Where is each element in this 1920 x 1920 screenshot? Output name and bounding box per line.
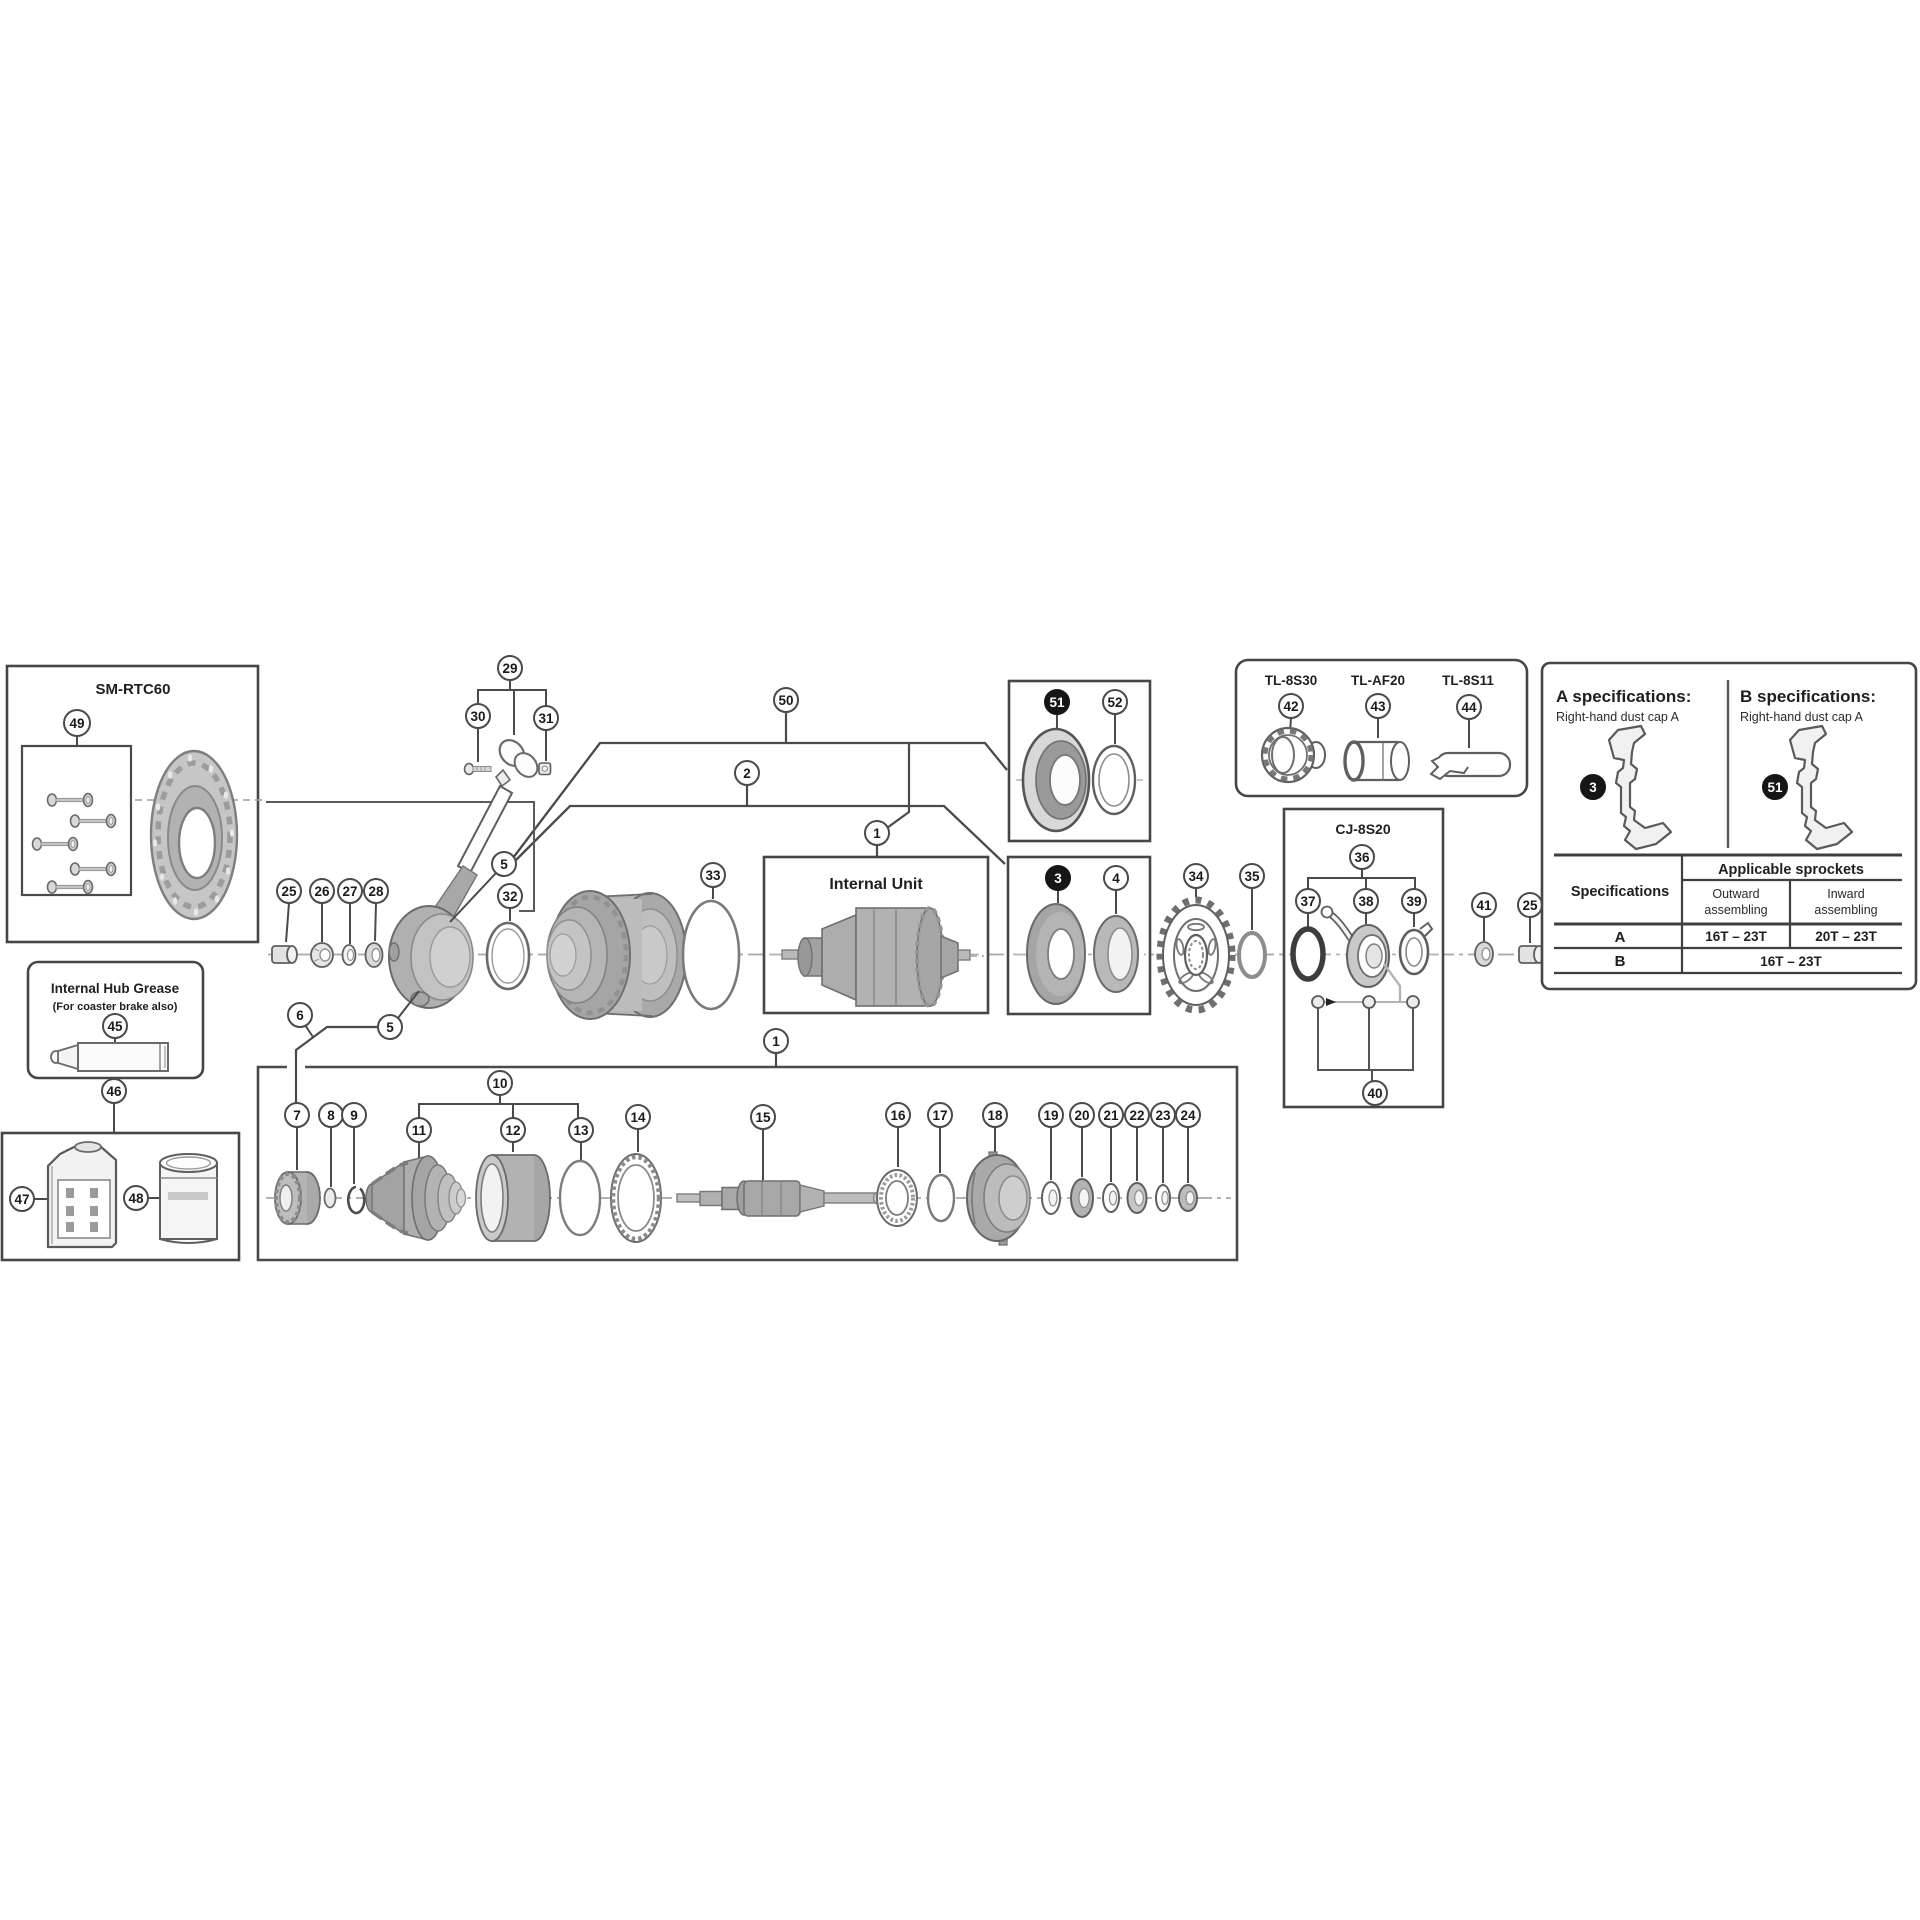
- svg-text:Inward: Inward: [1827, 887, 1865, 901]
- svg-text:20T – 23T: 20T – 23T: [1815, 929, 1877, 944]
- svg-text:33: 33: [705, 868, 721, 883]
- svg-text:22: 22: [1129, 1108, 1144, 1123]
- svg-text:Right-hand dust cap A: Right-hand dust cap A: [1556, 710, 1680, 724]
- svg-text:46: 46: [106, 1084, 122, 1099]
- svg-text:31: 31: [538, 711, 554, 726]
- svg-text:18: 18: [987, 1108, 1003, 1123]
- svg-text:1: 1: [772, 1034, 780, 1049]
- svg-text:TL-8S30: TL-8S30: [1265, 673, 1318, 688]
- svg-text:B specifications:: B specifications:: [1740, 687, 1876, 706]
- svg-text:36: 36: [1354, 850, 1370, 865]
- svg-text:A specifications:: A specifications:: [1556, 687, 1691, 706]
- svg-text:4: 4: [1112, 871, 1120, 886]
- svg-text:43: 43: [1370, 699, 1386, 714]
- svg-text:16: 16: [890, 1108, 906, 1123]
- svg-text:8: 8: [327, 1108, 335, 1123]
- svg-text:12: 12: [505, 1123, 520, 1138]
- svg-text:32: 32: [502, 889, 517, 904]
- svg-text:37: 37: [1300, 894, 1315, 909]
- svg-text:Outward: Outward: [1712, 887, 1759, 901]
- svg-text:39: 39: [1406, 894, 1421, 909]
- svg-text:47: 47: [14, 1192, 29, 1207]
- svg-text:21: 21: [1103, 1108, 1119, 1123]
- svg-text:assembling: assembling: [1814, 903, 1877, 917]
- svg-text:TL-8S11: TL-8S11: [1442, 673, 1494, 688]
- svg-text:20: 20: [1074, 1108, 1089, 1123]
- svg-text:30: 30: [470, 709, 485, 724]
- svg-text:23: 23: [1155, 1108, 1171, 1123]
- svg-text:50: 50: [778, 693, 793, 708]
- svg-text:Applicable sprockets: Applicable sprockets: [1718, 862, 1864, 878]
- svg-text:52: 52: [1107, 695, 1122, 710]
- svg-text:3: 3: [1589, 780, 1597, 795]
- svg-text:A: A: [1615, 929, 1626, 946]
- svg-text:9: 9: [350, 1108, 358, 1123]
- svg-text:assembling: assembling: [1704, 903, 1767, 917]
- svg-text:29: 29: [502, 661, 517, 676]
- svg-text:3: 3: [1054, 871, 1062, 886]
- svg-text:2: 2: [743, 766, 751, 781]
- svg-text:5: 5: [386, 1020, 394, 1035]
- svg-text:48: 48: [128, 1191, 144, 1206]
- svg-text:6: 6: [296, 1008, 304, 1023]
- svg-text:10: 10: [492, 1076, 507, 1091]
- svg-text:19: 19: [1043, 1108, 1058, 1123]
- svg-text:25: 25: [1522, 898, 1538, 913]
- svg-text:49: 49: [69, 716, 84, 731]
- svg-text:16T – 23T: 16T – 23T: [1705, 929, 1767, 944]
- svg-text:B: B: [1615, 953, 1626, 970]
- svg-text:Right-hand dust cap A: Right-hand dust cap A: [1740, 710, 1864, 724]
- svg-text:41: 41: [1476, 898, 1492, 913]
- svg-text:1: 1: [873, 826, 881, 841]
- svg-text:(For coaster brake also): (For coaster brake also): [53, 1001, 178, 1013]
- svg-text:7: 7: [293, 1108, 301, 1123]
- svg-text:26: 26: [314, 884, 330, 899]
- svg-text:CJ-8S20: CJ-8S20: [1335, 821, 1390, 837]
- svg-text:44: 44: [1461, 700, 1477, 715]
- svg-text:51: 51: [1767, 780, 1783, 795]
- svg-text:15: 15: [755, 1110, 771, 1125]
- svg-text:40: 40: [1367, 1086, 1382, 1101]
- svg-text:11: 11: [412, 1123, 427, 1138]
- svg-text:14: 14: [630, 1110, 646, 1125]
- svg-text:SM-RTC60: SM-RTC60: [95, 681, 170, 698]
- svg-text:27: 27: [342, 884, 357, 899]
- svg-text:13: 13: [573, 1123, 589, 1138]
- svg-text:24: 24: [1180, 1108, 1196, 1123]
- svg-text:38: 38: [1358, 894, 1374, 909]
- svg-text:42: 42: [1283, 699, 1298, 714]
- svg-text:Internal Unit: Internal Unit: [829, 876, 923, 893]
- svg-text:TL-AF20: TL-AF20: [1351, 673, 1405, 688]
- svg-text:35: 35: [1244, 869, 1260, 884]
- svg-text:25: 25: [281, 884, 297, 899]
- svg-text:17: 17: [932, 1108, 947, 1123]
- svg-text:5: 5: [500, 857, 508, 872]
- svg-text:16T – 23T: 16T – 23T: [1760, 954, 1822, 969]
- svg-text:51: 51: [1049, 695, 1065, 710]
- svg-text:34: 34: [1188, 869, 1204, 884]
- svg-text:28: 28: [368, 884, 384, 899]
- svg-text:45: 45: [107, 1019, 123, 1034]
- svg-text:Specifications: Specifications: [1571, 884, 1669, 900]
- svg-text:Internal Hub Grease: Internal Hub Grease: [51, 981, 180, 996]
